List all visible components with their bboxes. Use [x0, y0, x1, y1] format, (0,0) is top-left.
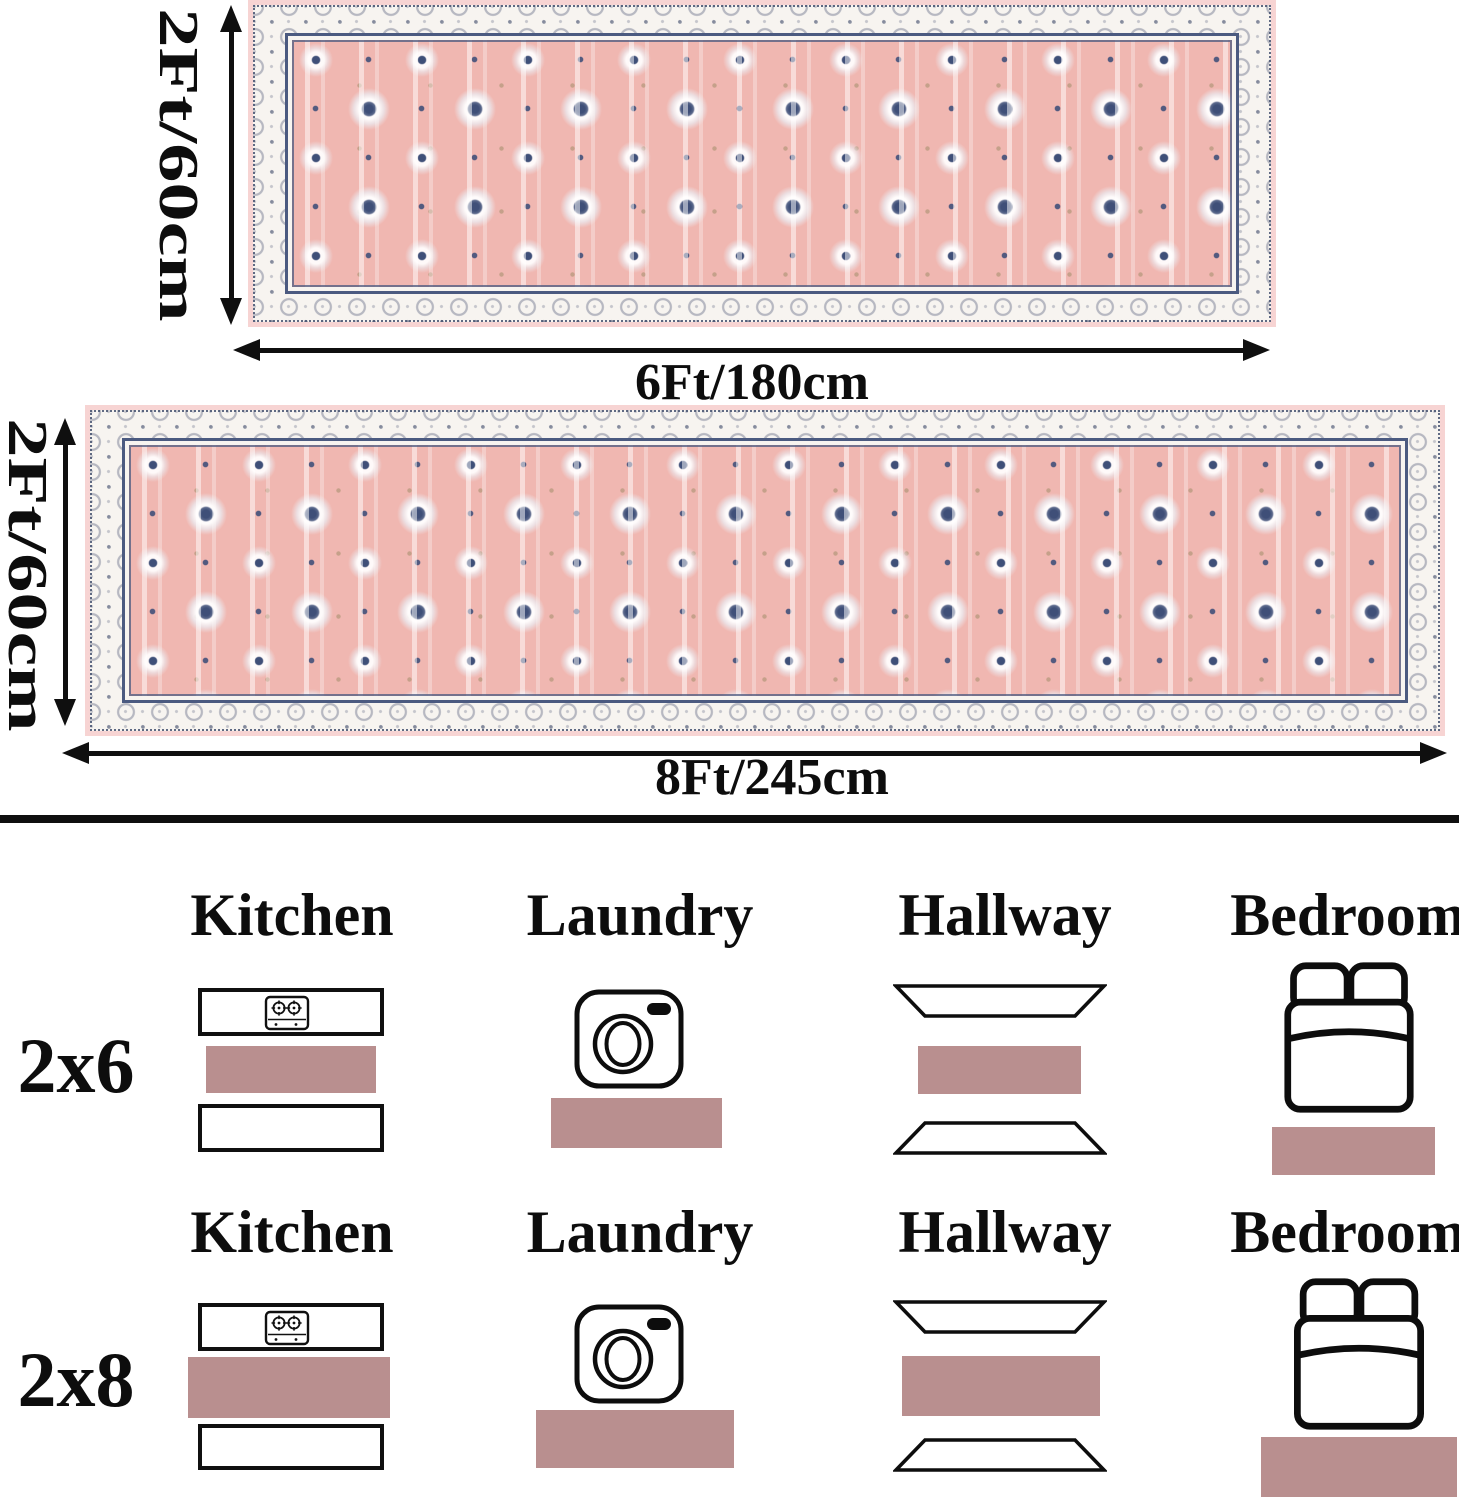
- stove-icon: [264, 1310, 310, 1346]
- room-label-laundry: Laundry: [527, 885, 754, 945]
- washing-machine-icon: [573, 1303, 685, 1405]
- rug-field-pattern: [292, 40, 1232, 287]
- row-size-label-2x8: 2x8: [18, 1341, 135, 1419]
- hallway-floor-bottom-icon: [893, 1438, 1107, 1472]
- rug-swatch: [902, 1356, 1100, 1416]
- kitchen-counter-box: [198, 1303, 384, 1351]
- rug-2x8-width-label: 8Ft/245cm: [655, 752, 889, 804]
- rug-swatch: [918, 1046, 1081, 1094]
- room-label-hallway: Hallway: [898, 885, 1111, 945]
- stove-icon: [264, 995, 310, 1031]
- hallway-floor-top-icon: [893, 1300, 1107, 1334]
- hallway-floor-top-icon: [893, 984, 1107, 1018]
- rug-swatch: [188, 1357, 390, 1418]
- kitchen-counter-box: [198, 988, 384, 1036]
- rug-swatch: [1272, 1127, 1435, 1175]
- rug-size-infographic: 2Ft/60cm 6Ft/180cm 2Ft/60cm 8Ft/245cm 2x…: [0, 0, 1459, 1500]
- room-label-bedroom: Bedroom: [1230, 1202, 1459, 1262]
- washing-machine-icon: [573, 988, 685, 1090]
- rug-2x6-width-label: 6Ft/180cm: [635, 357, 869, 409]
- rug-inner-frame: [285, 33, 1239, 294]
- rug-2x6-height-label: 2Ft/60cm: [150, 8, 206, 321]
- room-label-laundry: Laundry: [527, 1202, 754, 1262]
- rug-field-pattern: [129, 445, 1401, 696]
- rug-border-pattern: [90, 410, 1440, 731]
- room-label-bedroom: Bedroom: [1230, 885, 1459, 945]
- rug-swatch: [536, 1410, 734, 1468]
- kitchen-island-box: [198, 1104, 384, 1152]
- rug-inner-frame: [122, 438, 1408, 703]
- rug-photo-2x8: [85, 405, 1445, 736]
- room-label-kitchen: Kitchen: [190, 885, 393, 945]
- rug-border-pattern: [253, 5, 1271, 322]
- rug-swatch: [1261, 1437, 1457, 1497]
- row-size-label-2x6: 2x6: [18, 1027, 135, 1105]
- rug-swatch: [551, 1098, 722, 1148]
- height-double-arrow-icon: [218, 5, 244, 325]
- rug-swatch: [206, 1046, 376, 1093]
- bed-icon: [1290, 1276, 1428, 1432]
- hallway-floor-bottom-icon: [893, 1121, 1107, 1155]
- room-label-kitchen: Kitchen: [190, 1202, 393, 1262]
- room-label-hallway: Hallway: [898, 1202, 1111, 1262]
- bed-icon: [1282, 960, 1416, 1115]
- kitchen-island-box: [198, 1424, 384, 1470]
- section-divider: [0, 815, 1459, 823]
- rug-photo-2x6: [248, 0, 1276, 327]
- rug-2x8-height-label: 2Ft/60cm: [0, 418, 55, 731]
